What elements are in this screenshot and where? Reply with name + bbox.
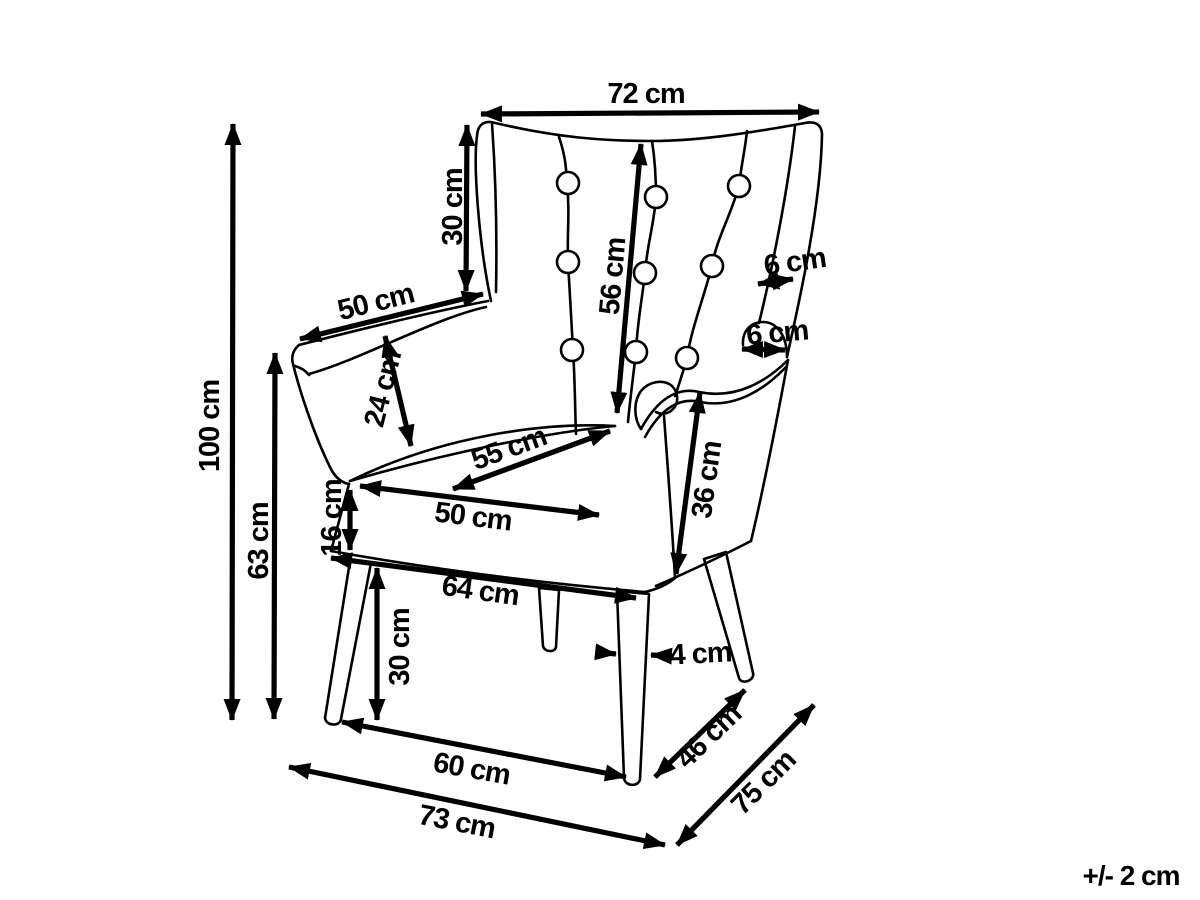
label-overall-height: 100 cm	[194, 380, 226, 472]
diagram-canvas: 72 cm 30 cm 56 cm 100 cm 63 cm 50 cm 24 …	[0, 0, 1200, 900]
dimension-seat-depth: 55 cm	[453, 420, 610, 489]
dimension-side-panel-height: 36 cm	[676, 392, 728, 574]
chair-drawing	[292, 122, 822, 785]
front-left-leg	[325, 561, 371, 725]
left-armrest-roll-line	[295, 366, 309, 375]
front-right-leg	[617, 591, 649, 785]
label-leg-height: 30 cm	[384, 608, 416, 685]
label-backrest-diagonal: 56 cm	[594, 236, 633, 316]
rear-left-leg	[539, 588, 559, 651]
dimension-back-to-floor: 63 cm	[243, 353, 275, 719]
label-wing-width: 6 cm	[762, 242, 828, 282]
arrow-leg-thickness-right	[651, 655, 670, 656]
tufting-buttons	[557, 172, 750, 369]
button-icon	[645, 186, 667, 208]
dimension-overall-height: 100 cm	[194, 124, 233, 720]
dimension-leg-height: 30 cm	[377, 568, 416, 720]
dimension-base-front-width: 60 cm	[342, 722, 626, 792]
arrow-leg-thickness-left	[597, 652, 616, 654]
left-wing-seam	[492, 124, 496, 292]
right-panel-back-edge	[751, 360, 788, 541]
dimension-wing-width: 6 cm	[758, 242, 828, 284]
dimension-armrest-roll-width: 6 cm	[742, 314, 810, 351]
button-icon	[561, 339, 583, 361]
label-seat-thickness: 16 cm	[316, 479, 348, 556]
right-wing-seam	[759, 126, 795, 323]
chair-dimension-diagram: 72 cm 30 cm 56 cm 100 cm 63 cm 50 cm 24 …	[0, 0, 1200, 900]
dimension-leg-span-depth: 46 cm	[655, 690, 748, 777]
dimension-leg-thickness: 4 cm	[597, 636, 732, 671]
label-back-top-height: 30 cm	[437, 168, 469, 245]
left-armrest-front-edge	[292, 345, 349, 484]
arrow-overall-height	[232, 124, 233, 720]
label-seat-base-width: 64 cm	[440, 570, 521, 612]
arrow-top-width	[481, 112, 819, 114]
label-armrest-roll-width: 6 cm	[745, 314, 810, 351]
label-leg-thickness: 4 cm	[669, 636, 733, 671]
button-icon	[676, 347, 698, 369]
button-icon	[728, 175, 750, 197]
dimension-back-top-height: 30 cm	[437, 125, 469, 291]
right-panel-bottom-edge	[656, 541, 751, 586]
button-icon	[557, 251, 579, 273]
seat-front-corner-edge	[664, 416, 675, 578]
button-icon	[701, 255, 723, 277]
button-icon	[625, 341, 647, 363]
label-back-to-floor: 63 cm	[243, 502, 275, 579]
button-icon	[634, 262, 656, 284]
dimension-seat-width: 50 cm	[360, 486, 599, 538]
label-armrest-height: 24 cm	[358, 347, 408, 430]
tolerance-note: +/- 2 cm	[1082, 860, 1179, 891]
button-icon	[557, 172, 579, 194]
label-leg-span-depth: 46 cm	[670, 698, 748, 775]
dimension-seat-thickness: 16 cm	[316, 479, 350, 556]
label-top-width: 72 cm	[607, 78, 684, 110]
dimension-top-width: 72 cm	[481, 78, 819, 114]
